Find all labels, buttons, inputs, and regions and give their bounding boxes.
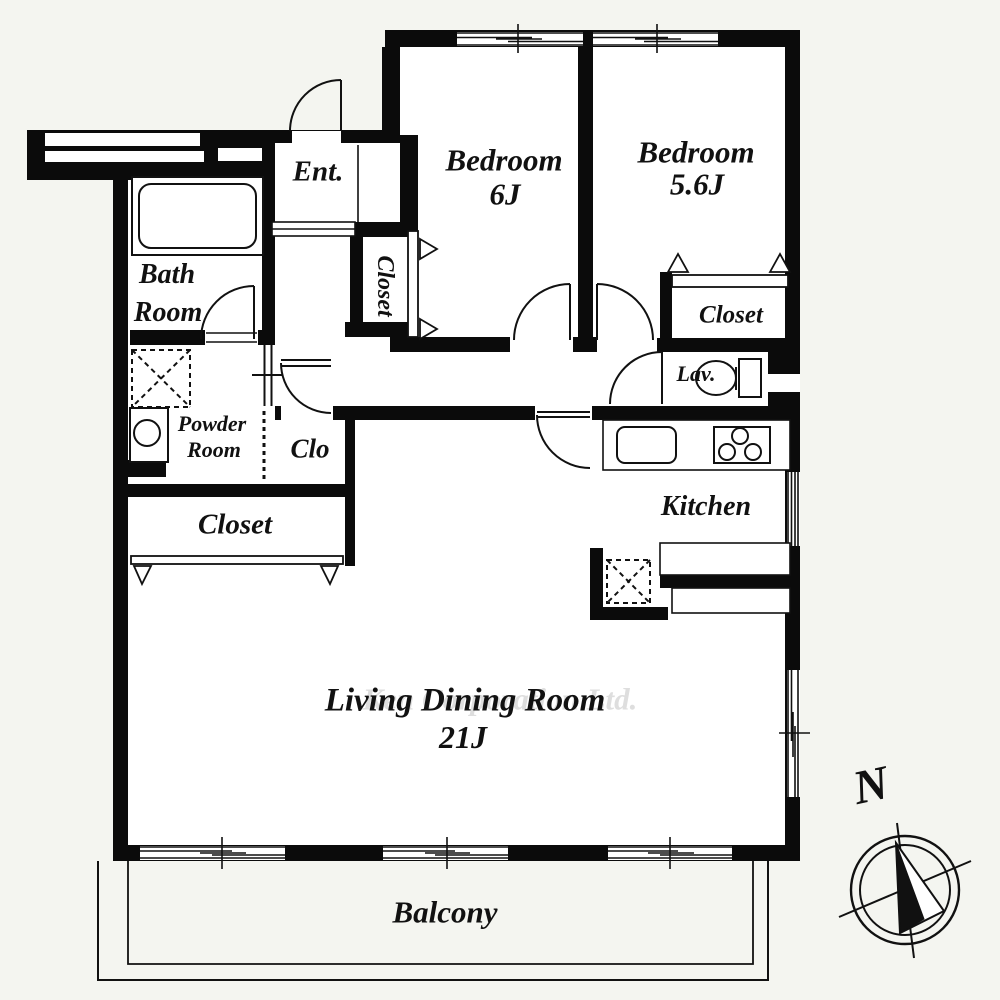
room-label-bedroom-56j: Bedroom <box>637 137 754 168</box>
compass-icon <box>839 823 971 958</box>
room-label-bathroom-line1: Bath <box>139 261 195 289</box>
room-size-living-dining: 21J <box>439 721 487 753</box>
room-size-bedroom-56j: 5.6J <box>670 169 724 200</box>
room-label-bathroom-line2: Room <box>134 299 202 327</box>
room-label-balcony: Balcony <box>392 897 497 928</box>
floor-plan: Ken Corporation Ltd. Bedroom 6J Bedroom … <box>0 0 1000 1000</box>
refrigerator-space <box>607 560 650 603</box>
room-label-powder-line1: Powder <box>178 413 246 435</box>
powder-sink <box>130 408 168 462</box>
room-label-bedroom-6j: Bedroom <box>445 145 562 176</box>
room-label-entrance: Ent. <box>293 158 344 187</box>
door-arcs <box>201 80 662 468</box>
room-size-bedroom-6j: 6J <box>490 179 521 210</box>
room-label-closet-hallway: Closet <box>198 511 272 540</box>
room-label-living-dining: Living Dining Room <box>325 685 606 718</box>
room-label-powder-line2: Room <box>187 439 241 461</box>
room-label-kitchen: Kitchen <box>661 493 751 521</box>
room-label-lavatory: Lav. <box>677 363 716 385</box>
washing-machine <box>132 350 190 407</box>
room-label-closet-entrance: Closet <box>373 255 397 316</box>
bathtub <box>132 177 263 255</box>
room-label-closet-bedroom: Closet <box>699 303 763 328</box>
sliding-door <box>252 345 283 479</box>
room-label-clo: Clo <box>290 436 329 463</box>
